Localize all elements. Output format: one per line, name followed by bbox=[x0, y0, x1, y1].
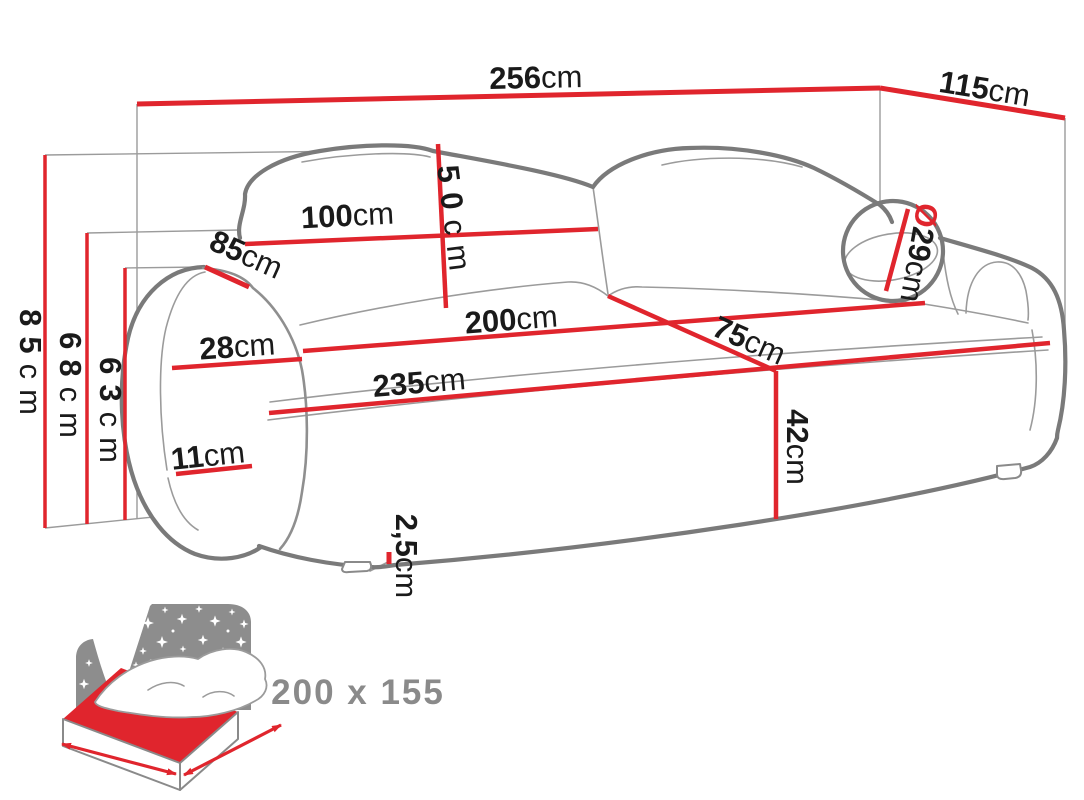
dimension-label-total-width: 256cm bbox=[489, 59, 583, 96]
star-dot bbox=[172, 630, 175, 633]
dimension-label-height-63: 63cm bbox=[93, 357, 128, 473]
dimension-label-height-68: 68cm bbox=[53, 332, 88, 448]
star-dot bbox=[118, 637, 121, 640]
star-icon bbox=[102, 647, 109, 654]
diagram-canvas: 256cm 115cm 85cm 68cm 63cm 50cm 100cm 85… bbox=[0, 0, 1084, 800]
star-dot bbox=[227, 630, 230, 633]
sofa-dimension-diagram: 256cm 115cm 85cm 68cm 63cm 50cm 100cm 85… bbox=[0, 0, 1084, 800]
dimension-label-height-85: 85cm bbox=[13, 309, 48, 425]
dimension-label-arm-28: 28cm bbox=[198, 326, 276, 366]
blanket-and-pillows bbox=[95, 649, 267, 718]
front-right-leg bbox=[997, 464, 1021, 479]
star-icon bbox=[105, 621, 119, 635]
star-icon bbox=[117, 638, 128, 649]
dimension-label-leg-25: 2,5cm bbox=[389, 514, 424, 598]
dimension-label-height-42: 42cm bbox=[780, 409, 815, 485]
sleeping-area-icon: 200 x 155 bbox=[62, 604, 445, 790]
dimension-label-seat-200: 200cm bbox=[463, 298, 559, 340]
front-left-leg bbox=[342, 562, 371, 572]
dimension-label-cushion-100: 100cm bbox=[300, 196, 395, 236]
dimension-label-total-depth: 115cm bbox=[937, 64, 1033, 113]
star-icon bbox=[127, 610, 134, 617]
sleeping-area-size: 200 x 155 bbox=[271, 673, 445, 712]
